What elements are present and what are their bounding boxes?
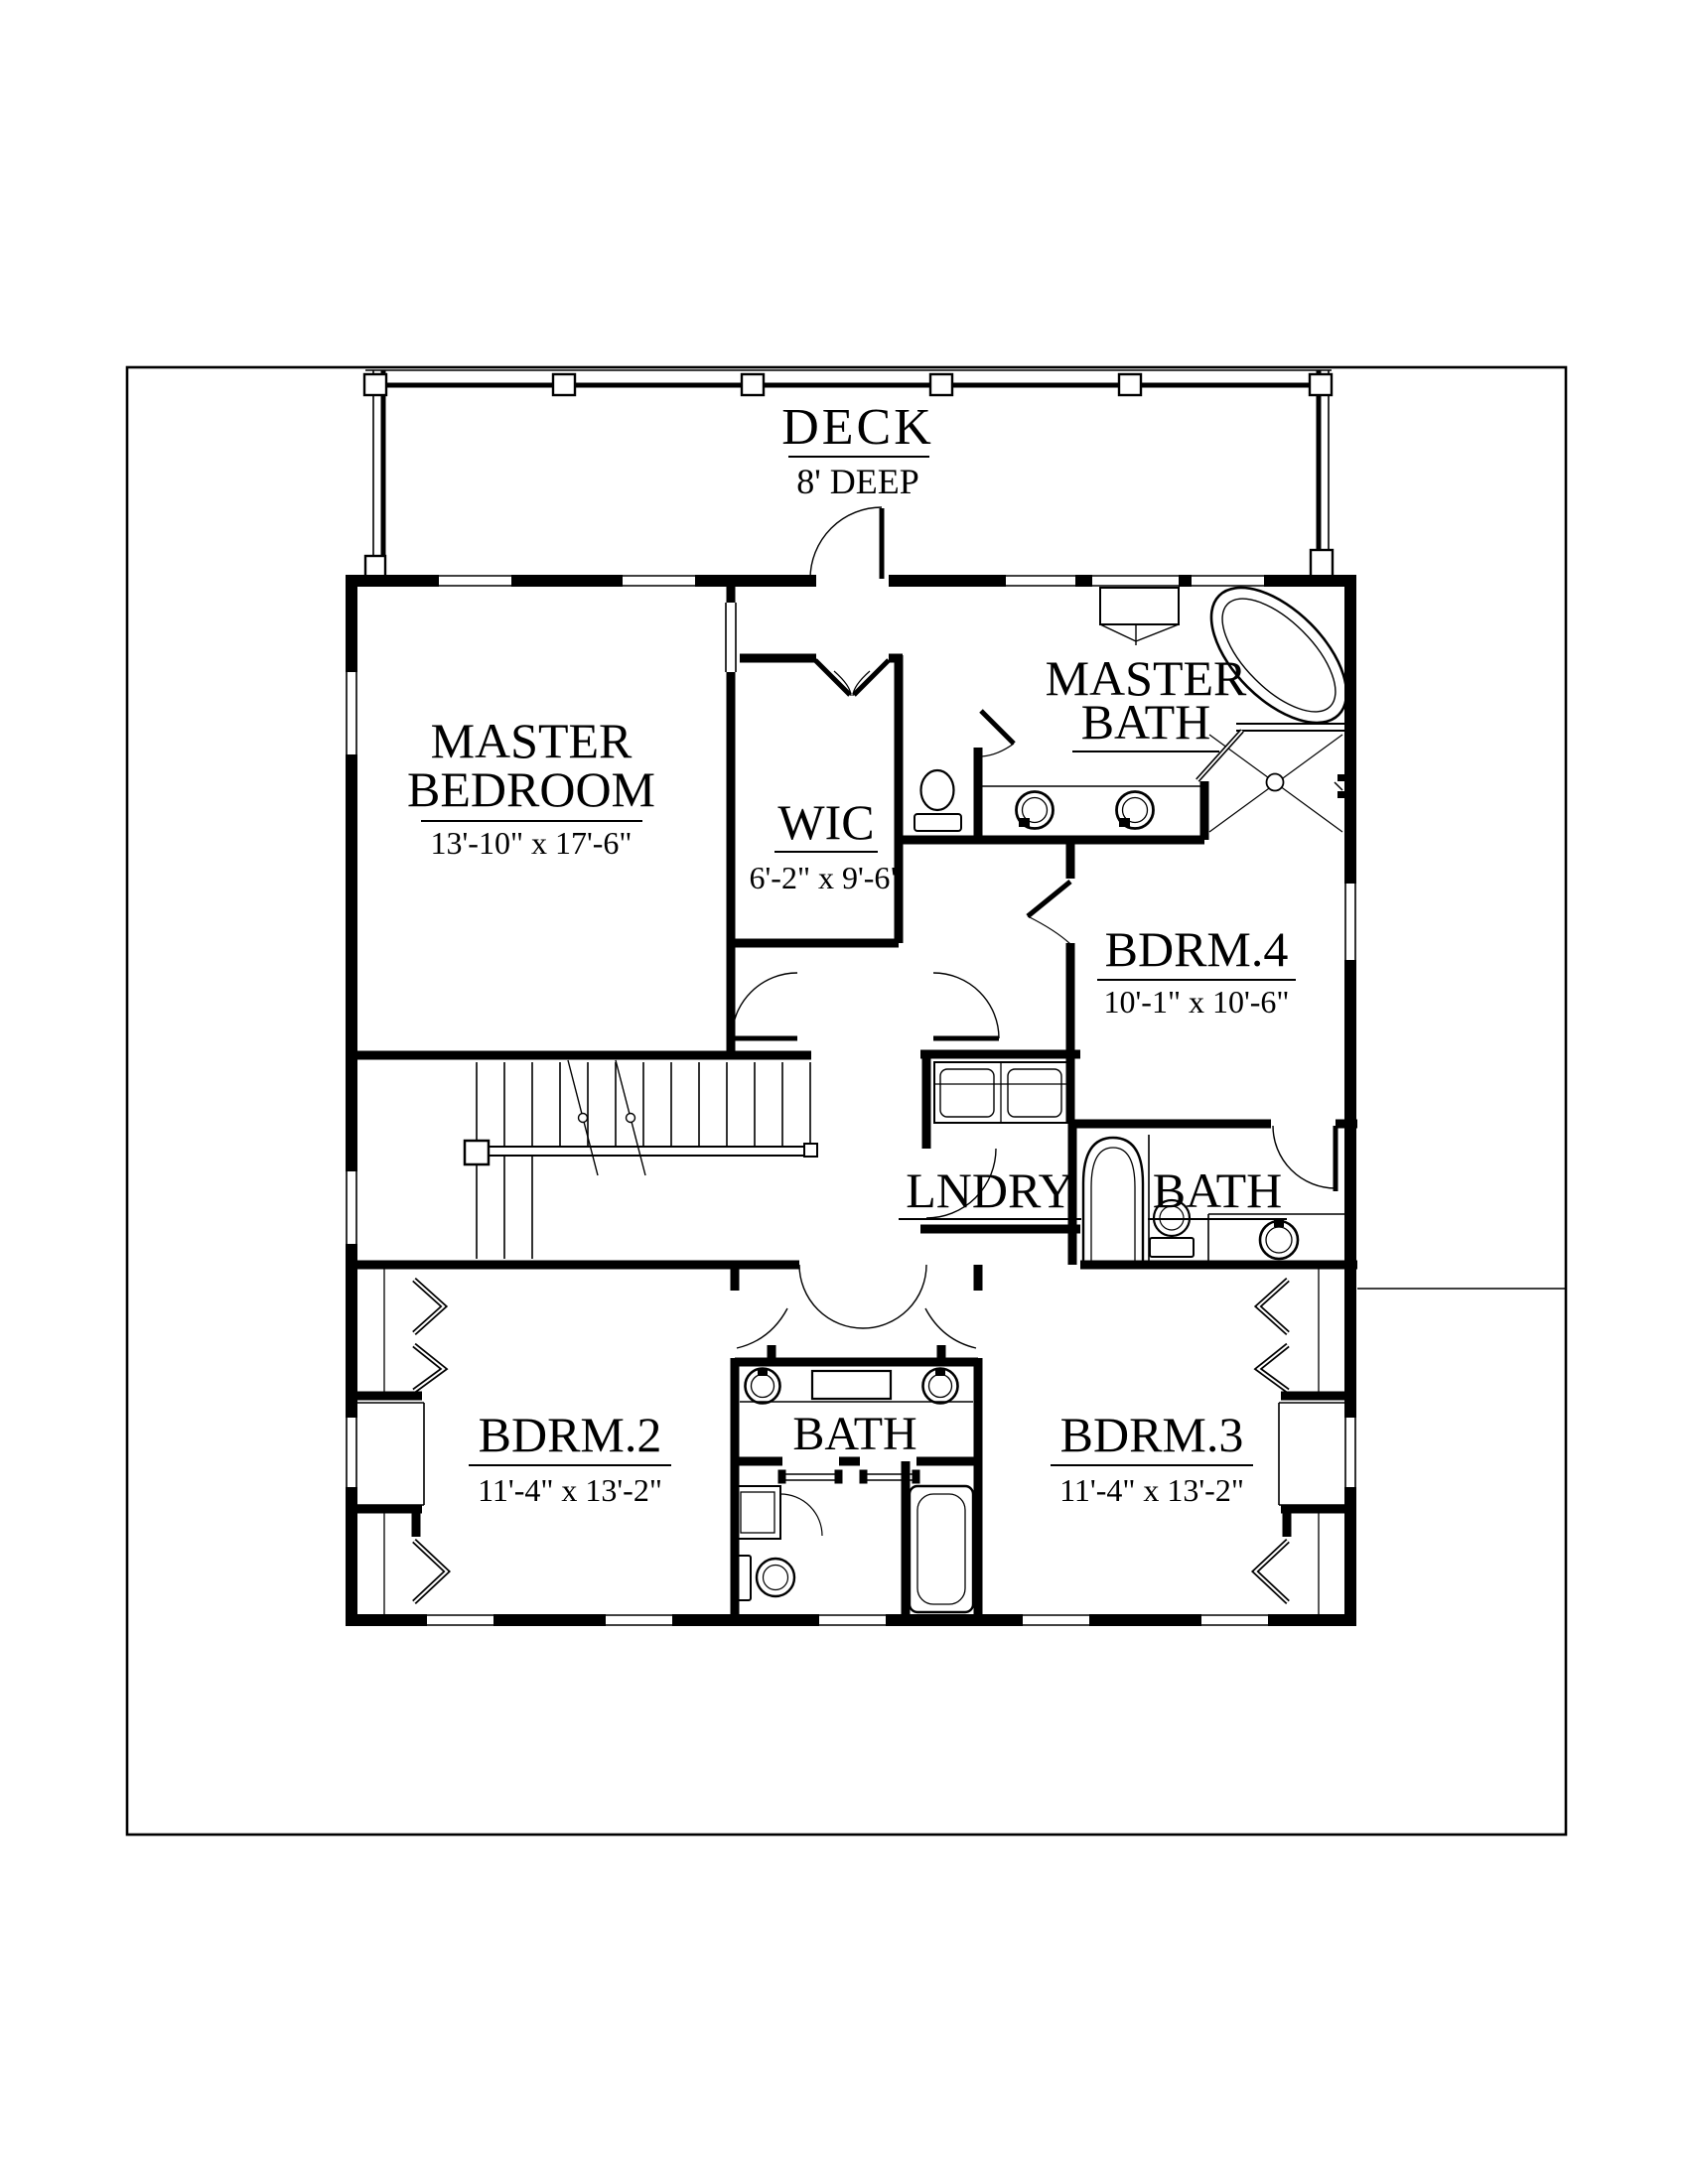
master-bath-label-2: BATH (1081, 694, 1211, 750)
page-background (0, 0, 1688, 2184)
deck-label: DECK (781, 399, 934, 456)
bdrm4-label: BDRM.4 (1105, 921, 1289, 977)
stair-break-loop-1 (579, 1114, 588, 1123)
hall-bath-label: BATH (1153, 1162, 1283, 1218)
stair-newel-post (465, 1141, 489, 1164)
bdrm4-dims: 10'-1" x 10'-6" (1104, 984, 1290, 1020)
wic-label: WIC (777, 794, 874, 850)
master-bedroom-label-1: MASTER (431, 713, 633, 768)
master-bedroom-dims: 13'-10" x 17'-6" (431, 825, 633, 861)
bdrm2-label: BDRM.2 (479, 1407, 662, 1462)
deck-depth: 8' DEEP (796, 462, 919, 501)
bdrm2-dims: 11'-4" x 13'-2" (478, 1472, 662, 1508)
bdrm3-dims: 11'-4" x 13'-2" (1059, 1472, 1244, 1508)
master-bedroom-label-2: BEDROOM (407, 761, 655, 817)
shared-bath-label: BATH (792, 1408, 916, 1460)
stair-rail-end (804, 1144, 817, 1157)
floor-plan: DECK 8' DEEP MASTER BEDROOM 13'-10" x 17… (0, 0, 1688, 2184)
wic-dims: 6'-2" x 9'-6" (750, 860, 904, 895)
stair-break-loop-2 (627, 1114, 635, 1123)
laundry-label: LNDRY (906, 1162, 1073, 1218)
bdrm3-label: BDRM.3 (1060, 1407, 1244, 1462)
